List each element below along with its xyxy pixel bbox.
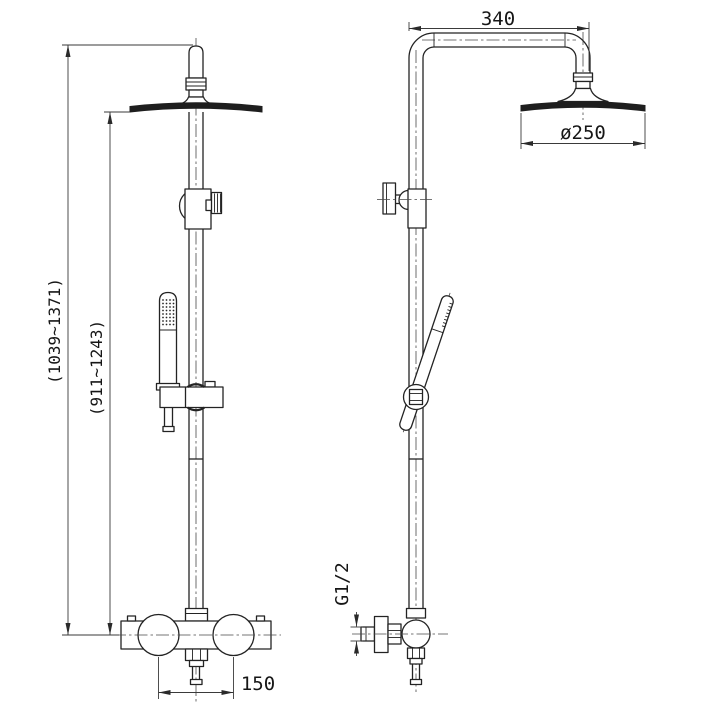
dim-overall-height-label: (1039~1371) bbox=[45, 278, 64, 384]
shower-arm-side bbox=[409, 33, 590, 189]
dim-arm-length-label: 340 bbox=[481, 8, 515, 30]
dim-outlet-spacing-label: 150 bbox=[241, 673, 275, 695]
wall-flange-side bbox=[375, 617, 389, 653]
rain-head-front bbox=[130, 46, 262, 112]
dim-outlet-spacing: 150 bbox=[159, 657, 276, 699]
diverter-side bbox=[377, 183, 432, 228]
rain-head-side bbox=[521, 73, 645, 111]
slide-bracket-front bbox=[160, 387, 223, 408]
dim-riser-height: (911~1243) bbox=[87, 112, 130, 635]
mixer-outlet-front bbox=[191, 680, 203, 685]
diverter-knob-side bbox=[383, 183, 396, 214]
front-view: (1039~1371) (911~1243) 150 bbox=[45, 38, 281, 704]
hose-stub-front bbox=[163, 427, 174, 432]
diverter-knob-front bbox=[212, 193, 222, 214]
hand-shower-side bbox=[398, 291, 456, 434]
mixer-outlet-side bbox=[411, 680, 422, 685]
technical-drawing-canvas: (1039~1371) (911~1243) 150 bbox=[0, 0, 715, 728]
dim-riser-height-label: (911~1243) bbox=[87, 320, 106, 416]
dim-arm-length: 340 bbox=[409, 8, 589, 71]
handset-side bbox=[398, 294, 454, 431]
diverter-front bbox=[180, 189, 222, 229]
side-view: 340 ø250 G1/2 bbox=[332, 8, 645, 694]
mixer-side bbox=[352, 609, 448, 685]
dim-head-diameter-label: ø250 bbox=[560, 122, 606, 144]
dim-inlet-thread-label: G1/2 bbox=[332, 562, 353, 605]
dim-inlet-thread: G1/2 bbox=[332, 562, 363, 656]
hand-shower-front bbox=[157, 293, 224, 432]
